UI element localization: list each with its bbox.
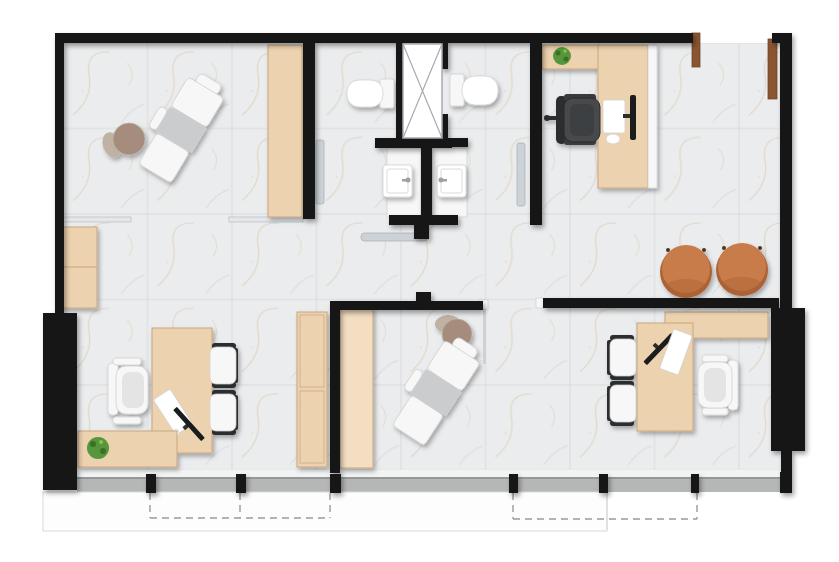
wall-room-nw <box>303 40 315 219</box>
desk-paper <box>603 100 625 133</box>
plant-leaf <box>563 49 566 52</box>
plant-icon <box>87 437 109 459</box>
tall-cabinet <box>297 312 327 467</box>
balcony-post <box>146 474 156 493</box>
guest-chair <box>210 343 238 388</box>
wall-waiting <box>543 298 779 308</box>
plant-leaf <box>99 440 103 444</box>
balcony-floor <box>77 477 783 492</box>
wall-elevator-left <box>396 40 403 140</box>
chair-seat <box>210 347 236 384</box>
chair-armrest <box>113 358 141 365</box>
entry-door-leaf <box>768 39 777 99</box>
monitor-stand <box>623 114 631 118</box>
guest-chair <box>210 390 238 435</box>
column-left <box>43 313 77 490</box>
side-shelf <box>542 45 600 69</box>
wall-corridor-right <box>530 40 542 225</box>
wc-right <box>450 74 498 106</box>
sink-right <box>437 165 466 197</box>
chair-armrest <box>702 408 728 415</box>
chair-armrest <box>702 355 728 362</box>
faucet-icon <box>439 178 444 183</box>
wall-treatment-left <box>330 301 340 473</box>
glass-partition <box>63 217 131 222</box>
wall-left <box>55 33 64 313</box>
toilet <box>347 80 383 107</box>
entry-door-post <box>692 33 700 67</box>
wc-left-door <box>316 140 324 204</box>
chair-armrest <box>113 417 141 424</box>
column-right <box>771 308 805 451</box>
chair-cushion <box>570 104 594 136</box>
plant-leaf <box>556 51 561 56</box>
wall-sink-divider <box>421 148 432 218</box>
pouf-foot <box>702 248 706 252</box>
plant <box>87 437 109 459</box>
doctor-stool <box>113 123 145 155</box>
chair-seat <box>210 394 236 431</box>
window-sill <box>64 470 780 477</box>
balcony-post <box>236 474 246 493</box>
wc-right-door <box>517 143 525 206</box>
wall-under-elevator <box>375 138 452 148</box>
floor-plan <box>0 0 839 562</box>
wall-stub <box>416 292 431 302</box>
wall-right <box>780 33 792 308</box>
wall-sink-front <box>389 215 458 225</box>
chair-cushion <box>122 372 144 408</box>
cabinet-body <box>297 312 327 467</box>
plant <box>553 47 571 65</box>
desk-side-panel <box>648 45 657 188</box>
chair-seat <box>610 385 636 422</box>
faucet-icon <box>406 178 411 183</box>
plant-leaf <box>564 57 569 62</box>
glass-partition <box>229 217 303 222</box>
task-chair-white <box>698 355 738 415</box>
balcony-edge-line <box>77 477 783 479</box>
plant-leaf <box>90 441 96 447</box>
pouf-foot <box>758 246 762 250</box>
pouf-foot <box>722 246 726 250</box>
wall-wc-right <box>448 138 468 147</box>
balcony-post <box>599 474 608 493</box>
wall-stub <box>414 225 429 239</box>
chair-base <box>544 115 550 121</box>
balcony-post <box>691 474 699 493</box>
toilet <box>462 76 498 105</box>
chair-cushion <box>704 368 726 402</box>
elevator-shaft <box>403 44 442 138</box>
terrace-slab <box>43 492 607 531</box>
chair-seat <box>610 339 636 376</box>
treatment-room-door-leaf <box>483 304 486 364</box>
wc-left <box>347 79 394 108</box>
balcony-post <box>330 474 341 493</box>
monitor-icon <box>630 95 636 140</box>
sink-left <box>383 165 412 197</box>
plant-icon <box>553 47 571 65</box>
balcony-post <box>509 474 518 493</box>
guest-chair <box>607 381 636 426</box>
pouf-foot <box>666 248 670 252</box>
mouse <box>606 134 620 144</box>
guest-chair <box>607 335 636 380</box>
plant-leaf <box>100 448 106 454</box>
wall-top <box>55 33 693 43</box>
wall-treatment-top <box>330 301 483 310</box>
balcony-post <box>780 472 792 493</box>
storage-counter <box>268 45 302 217</box>
door-jamb-cap <box>536 298 544 308</box>
pouf-rim <box>667 279 705 293</box>
pouf-rim <box>723 277 761 291</box>
wall-counter <box>340 308 373 468</box>
